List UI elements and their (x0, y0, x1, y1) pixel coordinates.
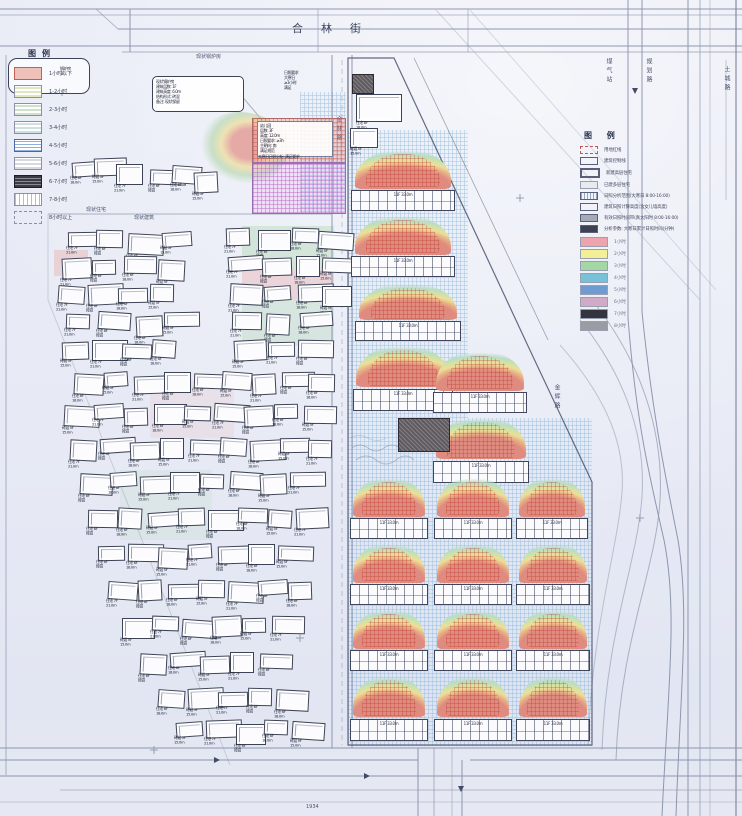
dark-roof-building (398, 418, 450, 452)
road-direction-arrow (364, 773, 370, 779)
building-label: 住宅 6F 砖混 (94, 247, 106, 256)
building-label: 住宅 6F 砖混 (260, 275, 272, 284)
legend-label: 1小时以下 (49, 70, 72, 77)
shadow-heatmap-mound (355, 215, 452, 255)
building-label: 住宅 6F 18.0m (108, 486, 120, 495)
legend-color-label: 2小时 (614, 251, 626, 257)
bottom-roads (0, 748, 742, 816)
legend-color-item: 7小时 (580, 309, 740, 319)
legend-color-label: 4小时 (614, 275, 626, 281)
shadow-heatmap-mound (519, 543, 588, 583)
building-label: 住宅 6F 18.0m (156, 707, 168, 716)
legend-color-item: 4小时 (580, 273, 740, 283)
road-name-label: 现状锅炉房 (196, 53, 221, 60)
kindergarten-caption: 大寒日日照分析: 满足要求 (258, 154, 299, 159)
sunshine-analysis-unit: 11F 33.0m (348, 476, 430, 542)
building-label: 住宅 6F 砖混 (296, 357, 308, 366)
building-label: 住宅 6F 18.0m (228, 489, 240, 498)
legend-item: 日照分析范围(大寒日 8:00-16:00) (580, 192, 740, 200)
building-label: 砖混 5F 15.0m (240, 632, 252, 641)
sunshine-analysis-unit: 11F 33.0m (352, 282, 464, 344)
legend-swatch-grid-blue (14, 139, 42, 152)
legend-item: 1小时以下 (14, 67, 124, 80)
building-label: 住宅 6F 18.0m (272, 418, 284, 427)
building-label: 住宅 6F 砖混 (86, 527, 98, 536)
legend-label: 2-3小时 (49, 106, 67, 113)
building-label: 住宅 6F 18.0m (152, 424, 164, 433)
building-label: 住宅 7F 21.0m (150, 630, 162, 639)
building-label: 砖混 5F 15.0m (278, 452, 290, 461)
legend-item: 3-4小时 (14, 121, 124, 134)
building-label: 砖混 5F 15.0m (62, 426, 74, 435)
building-label: 砖混 5F 15.0m (102, 386, 114, 395)
shadow-heatmap-mound (353, 543, 425, 583)
side-note: 日照要求 大寒日 ≥3小时 满足 (284, 70, 298, 90)
legend-item: 8小时以上 (14, 211, 124, 224)
legend-item: 2-3小时 (14, 103, 124, 116)
building-label: 住宅 7F 21.0m (68, 460, 80, 469)
building-label: 住宅 6F 砖混 (246, 705, 258, 714)
shadow-heatmap-mound (353, 477, 425, 517)
building-label: 住宅 6F 18.0m (248, 460, 260, 469)
building-label: 住宅 6F 砖混 (148, 184, 160, 193)
legend-swatch-lines-yellowgreen (14, 85, 42, 98)
building-footprint (248, 544, 275, 565)
road-name-label: 金辉路 (552, 384, 561, 411)
shadow-heatmap-mound (437, 609, 509, 649)
building-footprint (356, 94, 402, 122)
legend-label: 建筑日照计算高度(含女儿墙高度) (604, 204, 667, 210)
sunshine-analysis-unit: 11F 33.0m (348, 608, 430, 674)
building-label: 住宅 7F 21.0m (270, 633, 282, 642)
shadow-heatmap-mound (437, 543, 509, 583)
building-label: 砖混 5F 15.0m (158, 458, 170, 467)
legend-item: 用地红线 (580, 146, 740, 154)
legend-item: 5-6小时 (14, 157, 124, 170)
building-label: 砖混 5F 15.0m (146, 526, 158, 535)
building-label: 住宅 7F 21.0m (204, 737, 216, 746)
shadow-heatmap-mound (437, 477, 509, 517)
legend-item: 已建多层住宅 (580, 181, 740, 189)
building-label: 砖混 5F 15.0m (182, 420, 194, 429)
legend-item: 新建高层住宅 (580, 168, 740, 178)
building-label: 住宅 6F 砖混 (120, 358, 132, 367)
building-label: 住宅 6F 砖混 (138, 674, 150, 683)
building-label: 住宅 6F 砖混 (96, 560, 108, 569)
sunshine-analysis-unit: 11F 33.0m (432, 608, 514, 674)
legend-swatch-dash-white (14, 211, 42, 224)
kindergarten-info-box: 幼儿园 层数: 3F 高度: 12.0m 日照要求: ≥3h 主朝向: 南 满足… (257, 121, 333, 157)
residential-slab: 11F 33.0m (350, 584, 427, 605)
building-label: 住宅 7F 21.0m (250, 394, 262, 403)
building-label: 住宅 6F 18.0m (274, 710, 286, 719)
building-footprint (296, 256, 320, 277)
road-direction-arrow (214, 757, 220, 763)
building-label: 住宅 6F 18.0m (236, 522, 248, 531)
building-label: 住宅 6F 18.0m (298, 326, 310, 335)
legend-color-swatch (580, 321, 608, 331)
building-label: 住宅 7F 21.0m (168, 492, 180, 501)
sunshine-analysis-unit: 11F 33.0m (348, 542, 430, 608)
legend-label: 新建高层住宅 (606, 170, 632, 176)
building-label: 住宅 6F 砖混 (136, 600, 148, 609)
street-name-top: 合林街 (292, 20, 379, 36)
legend-label: 建筑控制线 (604, 158, 626, 164)
dark-roof-building (352, 74, 374, 94)
building-label: 砖混 5F 15.0m (276, 560, 288, 569)
building-label: 砖混 5F 15.0m (232, 360, 244, 369)
building-footprint (230, 652, 254, 673)
legend-item: 建筑日照计算高度(含女儿墙高度) (580, 203, 740, 211)
legend-swatch-lines-gray (14, 157, 42, 170)
building-label: 住宅 6F 砖混 (122, 425, 134, 434)
legend-item: 建筑控制线 (580, 157, 740, 165)
building-label: 砖混 5F 15.0m (196, 597, 208, 606)
sunshine-analysis-unit: 11F 33.0m (432, 476, 514, 542)
shadow-heatmap-mound (519, 477, 586, 517)
residential-slab: 11F 33.0m (350, 650, 427, 671)
legend-symbol-dash-red (580, 146, 598, 154)
legend-right: 图 例 用地红线建筑控制线新建高层住宅已建多层住宅日照分析范围(大寒日 8:00… (580, 130, 740, 333)
building-label: 住宅 7F 21.0m (306, 457, 318, 466)
building-label: 住宅 6F 18.0m (168, 666, 180, 675)
legend-color-swatch (580, 249, 608, 259)
sunshine-analysis-unit: 11F 33.0m (348, 214, 458, 280)
sunshine-analysis-unit: 11F 33.0m (514, 674, 592, 744)
legend-swatch-salmon (14, 67, 42, 80)
residential-slab: 11F 33.0m (434, 650, 511, 671)
building-label: 住宅 6F 砖混 (234, 744, 246, 753)
legend-item: 7-8小时 (14, 193, 124, 206)
legend-item: 有效日照时间带(真太阳时 8:00-16:00) (580, 214, 740, 222)
legend-color-swatch (580, 237, 608, 247)
building-label: 住宅 6F 18.0m (170, 183, 182, 192)
sunshine-analysis-unit: 11F 33.0m (432, 542, 514, 608)
building-label: 住宅 7F 21.0m (64, 328, 76, 337)
legend-label: 7-8小时 (49, 196, 67, 203)
building-label: 住宅 7F 21.0m (226, 602, 238, 611)
legend-color-label: 8小时 (614, 323, 626, 329)
legend-color-item: 8小时 (580, 321, 740, 331)
building-label: 住宅 6F 砖混 (256, 594, 268, 603)
building-label: 住宅 6F 18.0m (166, 598, 178, 607)
building-label: 砖混 5F 15.0m (138, 493, 150, 502)
building-label: 住宅 7F 21.0m (288, 486, 300, 495)
residential-slab: 11F 33.0m (434, 584, 511, 605)
shadow-heatmap-mound (436, 351, 524, 391)
building-label: 住宅 6F 砖混 (90, 274, 102, 283)
sunshine-analysis-unit: 11F 33.0m (514, 608, 592, 674)
building-label: 砖混 5F 15.0m (162, 326, 174, 335)
shadow-heatmap-mound (355, 149, 452, 189)
legend-color-item: 5小时 (580, 285, 740, 295)
building-label: 砖混 5F 15.0m (60, 359, 72, 368)
building-label: 住宅 6F 砖混 (242, 426, 254, 435)
building-label: 住宅 7F 21.0m (266, 356, 278, 365)
legend-color-item: 2小时 (580, 249, 740, 259)
legend-swatch-grid-dark (14, 175, 42, 188)
sunshine-analysis-unit: 11F 33.0m (514, 542, 592, 608)
building-label: 住宅 7F 21.0m (216, 706, 228, 715)
road-name-label: 规划路 (644, 58, 653, 85)
legend-symbol-outline (580, 203, 598, 211)
building-label: 住宅 7F 21.0m (228, 672, 240, 681)
building-label: 住宅 6F 18.0m (246, 564, 258, 573)
sunshine-analysis-unit: 11F 33.0m (348, 674, 430, 744)
legend-label: 5-6小时 (49, 160, 67, 167)
road-name-label: 煤气站 (604, 58, 613, 85)
shadow-heatmap-mound (519, 675, 588, 717)
residential-slab: 11F 33.0m (433, 392, 527, 413)
building-label: 住宅 6F 18.0m (150, 357, 162, 366)
road-direction-arrow (458, 786, 464, 792)
legend-symbol-outline (580, 157, 598, 165)
legend-label: 1-2小时 (49, 88, 67, 95)
kindergarten-analysis-grid (252, 162, 346, 214)
legend-label: 6-7小时 (49, 178, 67, 185)
building-label: 住宅 6F 18.0m (128, 459, 140, 468)
shadow-heatmap-mound (359, 283, 458, 320)
legend-label: 已建多层住宅 (604, 182, 630, 188)
legend-item: 4-5小时 (14, 139, 124, 152)
legend-label: 4-5小时 (49, 142, 67, 149)
building-label: 住宅 6F 砖混 (218, 455, 230, 464)
building-label: 住宅 6F 砖混 (86, 304, 98, 313)
building-label: 住宅 6F 18.0m (72, 394, 84, 403)
building-footprint (170, 472, 200, 493)
building-label: 砖混 5F 15.0m (192, 192, 204, 201)
legend-swatch-lines-green (14, 103, 42, 116)
building-label: 砖混 5F 15.0m (148, 301, 160, 310)
building-label: 住宅 6F 18.0m (192, 388, 204, 397)
legend-swatch-hatch-white (14, 193, 42, 206)
legend-label: 日照分析范围(大寒日 8:00-16:00) (604, 193, 670, 199)
sunshine-analysis-unit: 11F 33.0m (348, 148, 458, 214)
legend-label: 有效日照时间带(真太阳时 8:00-16:00) (604, 215, 678, 221)
legend-symbol-fill-gray (580, 214, 598, 222)
building-label: 砖混 5F 15.0m (120, 638, 132, 647)
legend-left-title: 图例 (28, 48, 124, 59)
legend-swatch-lines-cyan (14, 121, 42, 134)
shadow-heatmap-mound (353, 675, 425, 717)
building-label: 砖混 5F 15.0m (160, 246, 172, 255)
building-label: 住宅 6F 18.0m (306, 391, 318, 400)
building-label: 住宅 6F 18.0m (262, 734, 274, 743)
building-footprint (258, 230, 291, 251)
residential-slab: 11F 33.0m (355, 321, 460, 341)
building-label: 住宅 6F 砖混 (98, 452, 110, 461)
building-label: 住宅 6F 砖混 (198, 488, 210, 497)
building-label: 砖混 5F 15.0m (266, 527, 278, 536)
building-label: 住宅 7F 21.0m (132, 393, 144, 402)
legend-color-swatch (580, 309, 608, 319)
building-label: 住宅 7F 21.0m (106, 599, 118, 608)
legend-color-swatch (580, 261, 608, 271)
building-label: 砖混 5F 15.0m (186, 708, 198, 717)
legend-symbol-outline-thick (580, 168, 600, 178)
building-label: 住宅 6F 砖混 (162, 392, 174, 401)
building-label: 住宅 6F 18.0m (290, 242, 302, 251)
building-label: 住宅 6F 18.0m (126, 561, 138, 570)
legend-color-item: 1小时 (580, 237, 740, 247)
building-label: 住宅 7F 21.0m (188, 454, 200, 463)
building-label: 砖混 5F 15.0m (198, 673, 210, 682)
sunshine-analysis-unit: 11F 33.0m (514, 476, 590, 542)
road-name-label: 1934 (306, 804, 319, 810)
legend-symbol-grid (580, 192, 598, 200)
residential-slab: 11F 33.0m (350, 719, 427, 741)
boiler-callout: 现状锅炉房 建筑层数: 1F 建筑高度: 6.0m 结构形式: 砖混 备注: 现… (152, 76, 244, 112)
building-label: 住宅 6F 砖混 (258, 668, 270, 677)
building-label: 住宅 6F 18.0m (296, 301, 308, 310)
legend-color-swatch (580, 273, 608, 283)
residential-slab: 11F 33.0m (351, 190, 454, 211)
building-footprint (164, 372, 191, 393)
legend-color-item: 6小时 (580, 297, 740, 307)
building-footprint (322, 286, 352, 307)
sunshine-analysis-unit: 11F 33.0m (430, 350, 530, 416)
building-label: 住宅 7F 21.0m (224, 245, 236, 254)
legend-right-title: 图 例 (584, 130, 740, 141)
building-label: 住宅 6F 18.0m (210, 636, 222, 645)
building-label: 住宅 7F 21.0m (92, 418, 104, 427)
legend-color-item: 3小时 (580, 261, 740, 271)
legend-color-swatch (580, 285, 608, 295)
building-label: 住宅 7F 21.0m (294, 528, 306, 537)
building-label: 砖混 5F 15.0m (320, 272, 332, 281)
sunshine-analysis-unit: 11F 33.0m (432, 674, 514, 744)
residential-slab: 11F 33.0m (434, 518, 511, 539)
legend-symbol-fill-dark (580, 225, 598, 233)
building-label: 住宅 6F 砖混 (206, 530, 218, 539)
building-label: 砖混 5F 15.0m (258, 494, 270, 503)
building-label: 住宅 7F 21.0m (90, 360, 102, 369)
shadow-heatmap-mound (437, 675, 509, 717)
building-label: 住宅 6F 18.0m (116, 302, 128, 311)
building-label: 住宅 6F 砖混 (180, 637, 192, 646)
building-label: 住宅 6F 砖混 (280, 386, 292, 395)
building-footprint (350, 128, 378, 148)
building-label: 住宅 6F 18.0m (116, 528, 128, 537)
residential-slab: 11F 33.0m (350, 518, 427, 539)
legend-color-swatch (580, 297, 608, 307)
building-label: 住宅 7F 21.0m (176, 525, 188, 534)
legend-color-label: 5小时 (614, 287, 626, 293)
site-plan-canvas: 合林街 金林路煤气站规划路土城路金辉路现状住宅现状建筑现状锅炉房1934 锅炉房… (0, 0, 742, 816)
residential-slab: 11F 33.0m (516, 518, 587, 539)
legend-label: 用地红线 (604, 147, 621, 153)
building-label: 住宅 7F 21.0m (230, 329, 242, 338)
residential-slab: 11F 33.0m (434, 719, 511, 741)
building-label: 砖混 5F 15.0m (302, 423, 314, 432)
building-label: 砖混 5F 15.0m (220, 389, 232, 398)
legend-color-label: 3小时 (614, 263, 626, 269)
legend-label: 分析参数: 大寒日累计日照时间(分钟) (604, 226, 674, 232)
legend-color-label: 1小时 (614, 239, 626, 245)
legend-label: 3-4小时 (49, 124, 67, 131)
building-label: 砖混 5F 15.0m (156, 568, 168, 577)
residential-slab: 11F 33.0m (516, 584, 589, 605)
legend-color-label: 7小时 (614, 311, 626, 317)
building-label: 砖混 5F 15.0m (174, 736, 186, 745)
building-label: 住宅 6F 18.0m (122, 273, 134, 282)
shadow-heatmap-mound (519, 609, 588, 649)
building-label: 砖混 5F 15.0m (350, 147, 362, 156)
legend-label: 8小时以上 (49, 214, 72, 221)
building-label: 住宅 7F 21.0m (212, 421, 224, 430)
building-label: 住宅 6F 砖混 (216, 563, 228, 572)
building-label: 住宅 6F 18.0m (286, 599, 298, 608)
building-label: 住宅 6F 砖混 (96, 329, 108, 338)
building-label: 住宅 6F 砖混 (78, 494, 90, 503)
legend-color-label: 6小时 (614, 299, 626, 305)
building-footprint (160, 438, 184, 459)
building-label: 住宅 7F 21.0m (56, 303, 68, 312)
legend-item: 1-2小时 (14, 85, 124, 98)
legend-item: 分析参数: 大寒日累计日照时间(分钟) (580, 225, 740, 233)
residential-slab: 11F 33.0m (516, 719, 589, 741)
building-label: 住宅 7F 21.0m (66, 246, 78, 255)
building-label: 砖混 5F 15.0m (290, 739, 302, 748)
shadow-heatmap-mound (353, 609, 425, 649)
road-direction-arrow (632, 88, 638, 94)
building-label: 住宅 7F 21.0m (226, 270, 238, 279)
building-label: 住宅 6F 砖混 (262, 300, 274, 309)
building-label: 住宅 7F 21.0m (186, 558, 198, 567)
legend-item: 6-7小时 (14, 175, 124, 188)
road-name-label: 现状建筑 (134, 214, 154, 221)
residential-slab: 11F 33.0m (351, 256, 454, 277)
residential-slab: 11F 33.0m (516, 650, 589, 671)
legend-left: 图例 1小时以下1-2小时2-3小时3-4小时4-5小时5-6小时6-7小时7-… (14, 48, 124, 229)
road-name-label: 土城路 (722, 66, 731, 93)
legend-symbol-outline-gray (580, 181, 598, 189)
